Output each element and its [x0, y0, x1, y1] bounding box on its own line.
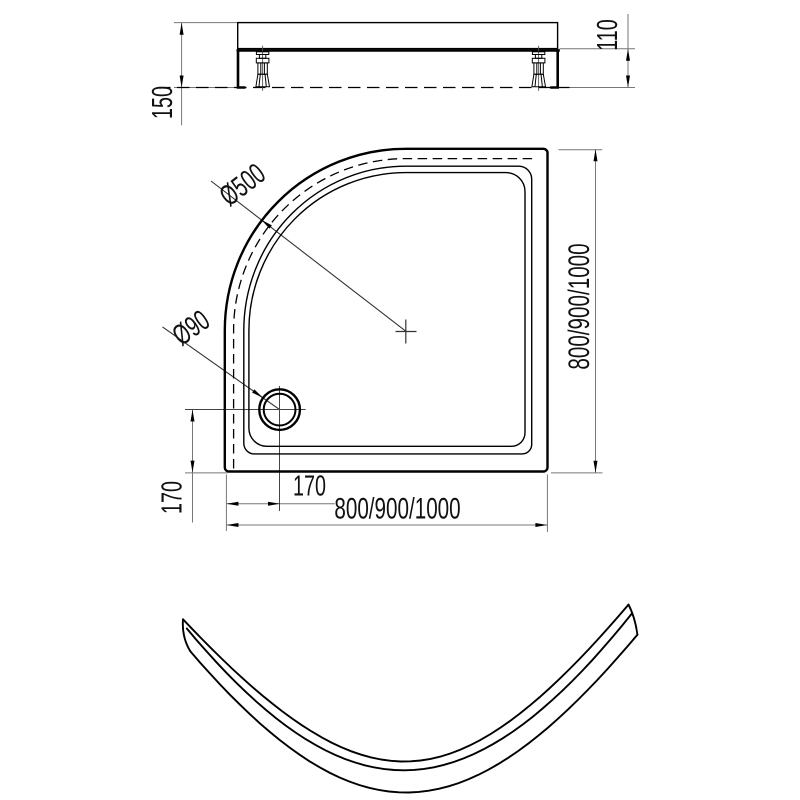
- svg-text:800/900/1000: 800/900/1000: [334, 493, 460, 525]
- svg-text:170: 170: [157, 481, 189, 514]
- svg-text:110: 110: [592, 19, 624, 50]
- svg-text:150: 150: [147, 86, 179, 119]
- svg-text:800/900/1000: 800/900/1000: [563, 243, 595, 369]
- svg-text:170: 170: [293, 471, 326, 503]
